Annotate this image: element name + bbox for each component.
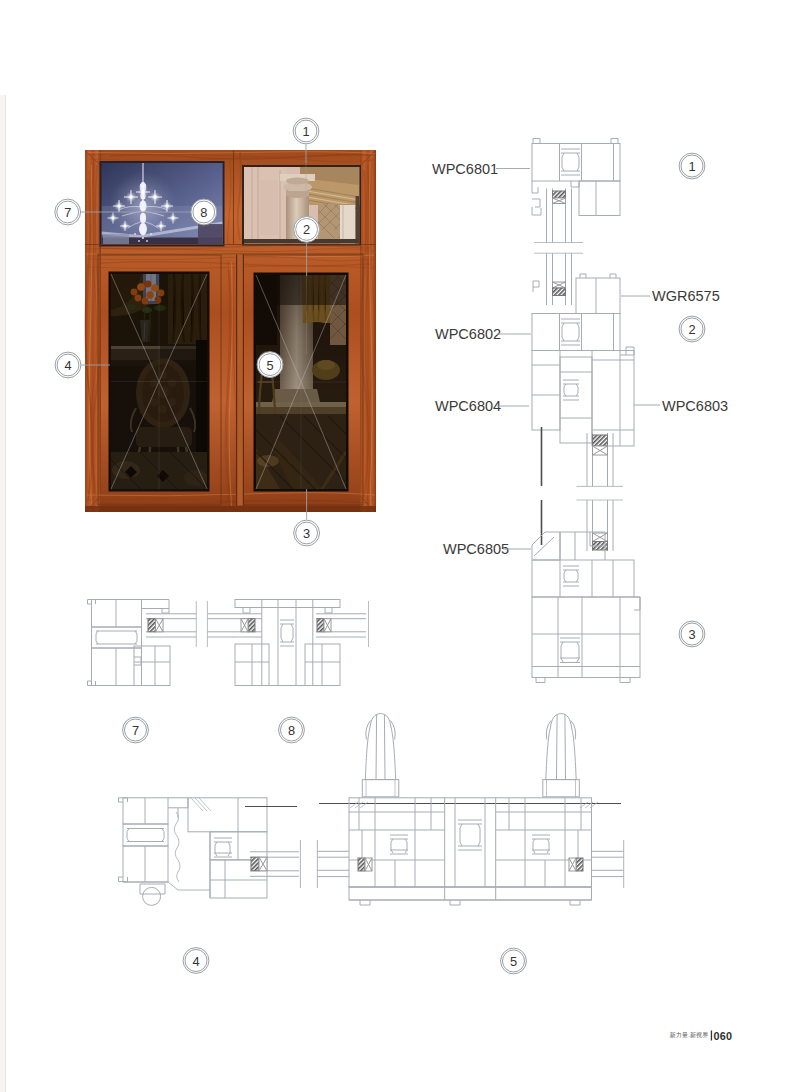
svg-text:8: 8 xyxy=(288,723,295,738)
svg-text:WPC6802: WPC6802 xyxy=(435,326,501,342)
svg-text:4: 4 xyxy=(192,954,199,969)
svg-text:3: 3 xyxy=(303,526,310,541)
svg-text:WPC6801: WPC6801 xyxy=(432,161,498,177)
svg-text:WPC6805: WPC6805 xyxy=(443,541,509,557)
svg-text:8: 8 xyxy=(200,205,207,220)
svg-text:5: 5 xyxy=(266,358,273,373)
svg-text:7: 7 xyxy=(132,723,139,738)
svg-text:1: 1 xyxy=(302,124,309,139)
svg-text:3: 3 xyxy=(688,627,695,642)
svg-text:2: 2 xyxy=(688,322,695,337)
svg-text:7: 7 xyxy=(64,205,71,220)
svg-text:2: 2 xyxy=(303,222,310,237)
svg-text:WPC6803: WPC6803 xyxy=(662,398,728,414)
svg-text:4: 4 xyxy=(64,358,71,373)
svg-text:WPC6804: WPC6804 xyxy=(435,398,501,414)
svg-text:新力量.新视界: 新力量.新视界 xyxy=(669,1031,709,1039)
svg-text:060: 060 xyxy=(714,1030,733,1042)
svg-text:1: 1 xyxy=(688,159,695,174)
svg-text:5: 5 xyxy=(510,954,517,969)
svg-text:WGR6575: WGR6575 xyxy=(652,288,720,304)
